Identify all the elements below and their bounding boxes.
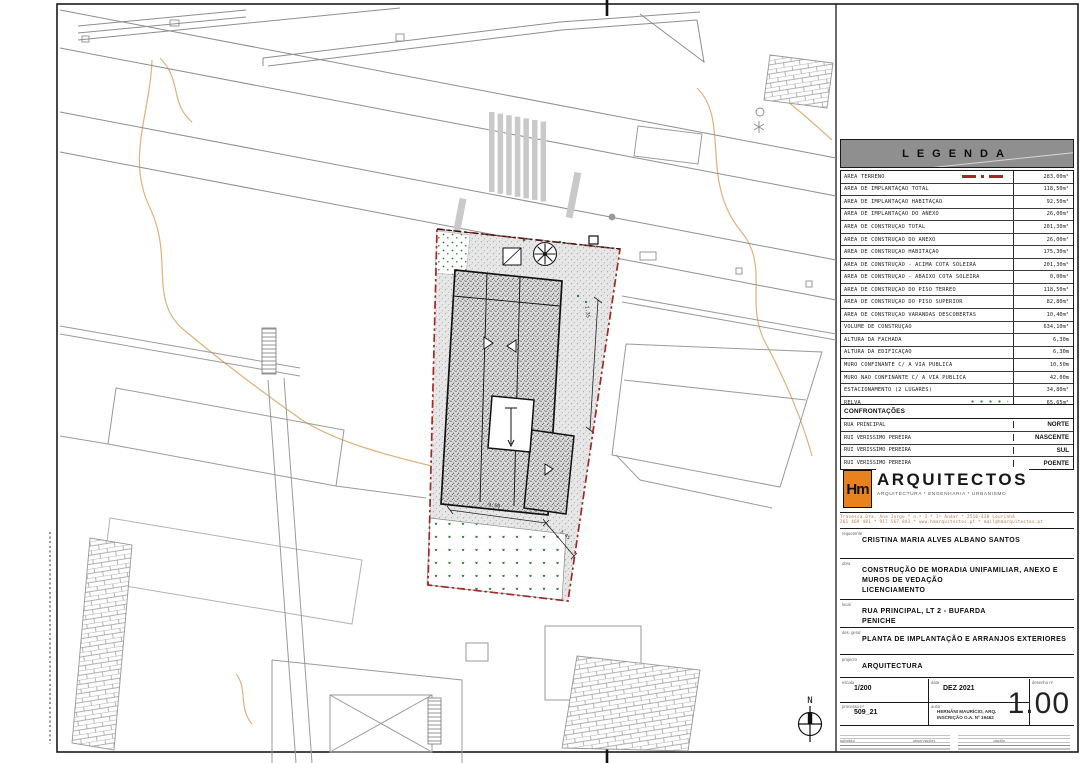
legend-row: ÁREA DE CONSTRUÇÃO - ACIMA COTA SOLEIRA2… — [841, 259, 1073, 272]
legend-row: VOLUME DE CONSTRUÇÃO634,10m³ — [841, 322, 1073, 335]
field-obra: obra CONSTRUÇÃO DE MORADIA UNIFAMILIAR, … — [840, 560, 1074, 600]
terreno-boundary-symbol — [962, 175, 1008, 178]
legend-row: ESTACIONAMENTO (2 LUGARES)34,80m² — [841, 384, 1073, 397]
legend-table: ÁREA TERRENO283,00m² ÁREA DE IMPLANTAÇÃO… — [840, 170, 1074, 422]
legend-row: ÁREA DE CONSTRUÇÃO TOTAL201,30m² — [841, 221, 1073, 234]
legend-title: LEGENDA — [902, 148, 1012, 160]
manhole — [609, 214, 616, 221]
legend-header: LEGENDA — [840, 139, 1074, 168]
firm-logo-block: Hm ARQUITECTOS ARQUITECTURA * ENGENHARIA… — [840, 468, 1074, 513]
tree-symbol — [534, 243, 557, 266]
legend-row: ÁREA DE IMPLANTAÇÃO HABITAÇÃO92,50m² — [841, 196, 1073, 209]
process-number: 509_21 — [840, 709, 928, 716]
legend-row: MURO NÃO CONFINANTE C/ A VIA PÚBLICA42,0… — [841, 372, 1073, 385]
firm-name: ARQUITECTOS — [876, 469, 1029, 491]
legend-row: ÁREA DE IMPLANTAÇÃO DO ANEXO26,00m² — [841, 209, 1073, 222]
scale-value: 1/200 — [840, 685, 928, 692]
confrontacoes-title: CONFRONTAÇÕES — [841, 408, 905, 415]
firm-tagline: ARQUITECTURA * ENGENHARIA * URBANISMO — [877, 492, 1006, 497]
field-local: local RUA PRINCIPAL, LT 2 - BUFARDA PENI… — [840, 601, 1074, 628]
firm-logo: Hm — [843, 470, 872, 508]
sheet-number: 1.00 — [1008, 687, 1070, 721]
field-processo: processo nº 509_21 — [840, 703, 928, 726]
field-desenho: desenho nº 1.00 — [1030, 679, 1074, 725]
legend-row: ÁREA DE CONSTRUÇÃO - ABAIXO COTA SOLEIRA… — [841, 271, 1073, 284]
confrontacao-row: RUI VERISSIMO PEREIRANASCENTE — [841, 432, 1073, 445]
north-label: N — [807, 696, 812, 706]
confrontacao-row: RUI VERISSIMO PEREIRASUL — [841, 445, 1073, 458]
legend-row: MURO CONFINANTE C/ A VIA PÚBLICA10,50m — [841, 359, 1073, 372]
legend-row: ÁREA DE CONSTRUÇÃO DO ANEXO26,00m² — [841, 234, 1073, 247]
drawing-title: PLANTA DE IMPLANTAÇÃO E ARRANJOS EXTERIO… — [840, 635, 1074, 645]
confrontacoes-table: CONFRONTAÇÕES RUA PRINCIPALNORTE RUI VER… — [840, 404, 1074, 470]
drawing-sheet: 9.50 3.45 1.35 N LEGENDA ÁREA TERRENO283… — [0, 0, 1080, 763]
legend-row: ÁREA DE CONSTRUÇÃO DO PISO TÉRREO118,50m… — [841, 284, 1073, 297]
legend-row: ÁREA TERRENO283,00m² — [841, 171, 1073, 184]
fine-print — [840, 735, 950, 751]
field-designacao: des. geral PLANTA DE IMPLANTAÇÃO E ARRAN… — [840, 629, 1074, 655]
meta-grid: escala 1/200 processo nº 509_21 data DEZ… — [840, 679, 1074, 726]
confrontacao-row: RUA PRINCIPALNORTE — [841, 419, 1073, 432]
field-escala: escala 1/200 — [840, 679, 928, 703]
legend-row: ALTURA DA EDIFICAÇÃO6,30m — [841, 347, 1073, 360]
legend-row: ALTURA DA FACHADA6,30m — [841, 334, 1073, 347]
field-projecto: projecto ARQUITECTURA — [840, 656, 1074, 678]
fine-print — [958, 735, 1070, 751]
margin-microtext — [49, 532, 51, 744]
legend-row: ÁREA DE IMPLANTAÇÃO TOTAL118,50m² — [841, 184, 1073, 197]
field-requerente: requerente CRISTINA MARIA ALVES ALBANO S… — [840, 530, 1074, 559]
client-name: CRISTINA MARIA ALVES ALBANO SANTOS — [840, 536, 1074, 546]
legend-row: ÁREA DE CONSTRUÇÃO DO PISO SUPERIOR82,80… — [841, 296, 1073, 309]
firm-address: Travessa Dra. Ana Jorge * n.º 3 * 1º And… — [840, 513, 1074, 529]
title-block: LEGENDA ÁREA TERRENO283,00m² ÁREA DE IMP… — [840, 4, 1074, 752]
title-block-footer: substituiobservaçõesdactilo — [840, 727, 1074, 752]
legend-row: ÁREA DE CONSTRUÇÃO VARANDAS DESCOBERTAS1… — [841, 309, 1073, 322]
legend-row: ÁREA DE CONSTRUÇÃO HABITAÇÃO175,30m² — [841, 246, 1073, 259]
